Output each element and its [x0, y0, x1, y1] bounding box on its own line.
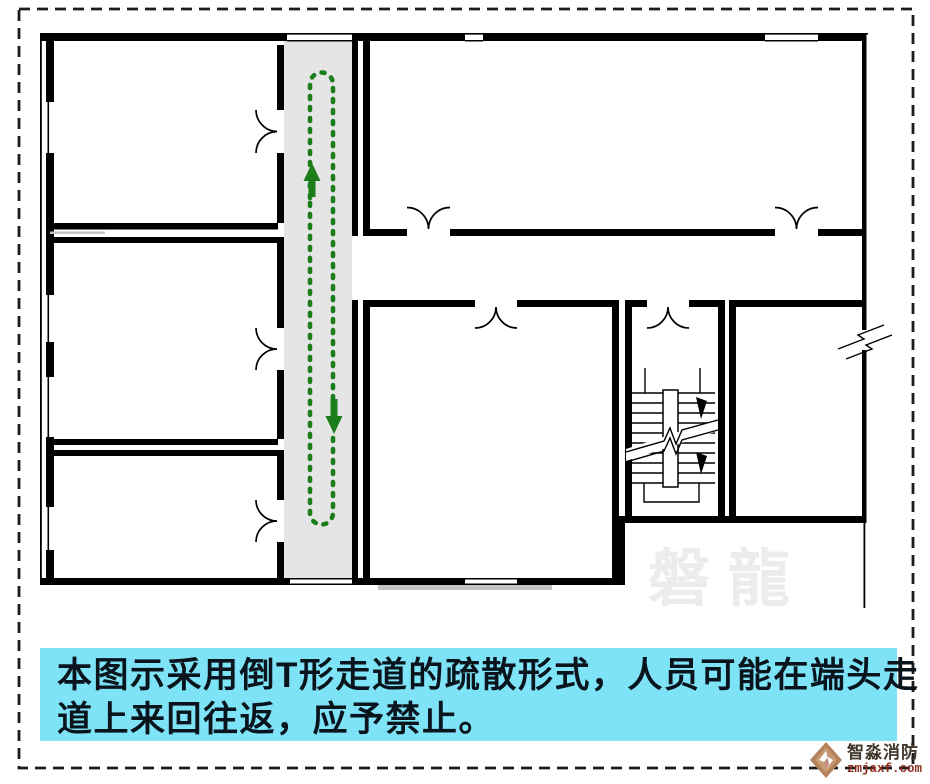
door-symbol-room-left-2 — [256, 328, 277, 370]
staircase — [626, 368, 718, 502]
logo-diamond-icon — [808, 740, 844, 780]
corridor-highlight — [284, 41, 352, 578]
bottom-wall-gray-shadow — [378, 585, 552, 590]
screenshot-root: 磐龍 — [0, 0, 930, 784]
caption-box: 本图示采用倒T形走道的疏散形式，人员可能在端头走 道上来回往返，应予禁止。 — [40, 648, 897, 741]
walls — [40, 33, 868, 608]
logo-domain: zmjaxf.com — [847, 763, 922, 776]
door-symbol-room-left-3 — [256, 500, 277, 542]
site-logo: 智淼消防 zmjaxf.com — [808, 740, 922, 780]
door-symbol-bottom-room — [475, 307, 517, 328]
door-symbol-top-room-b — [775, 208, 818, 230]
caption-line-1: 本图示采用倒T形走道的疏散形式，人员可能在端头走 — [57, 654, 897, 698]
caption-line-2: 道上来回往返，应予禁止。 — [57, 698, 897, 742]
stair-direction-arrow-icon — [696, 397, 707, 419]
door-symbol-room-left-1 — [256, 110, 277, 153]
door-symbol-stair-room — [647, 307, 689, 328]
door-symbol-top-room-a — [407, 208, 450, 230]
logo-name: 智淼消防 — [847, 744, 922, 761]
